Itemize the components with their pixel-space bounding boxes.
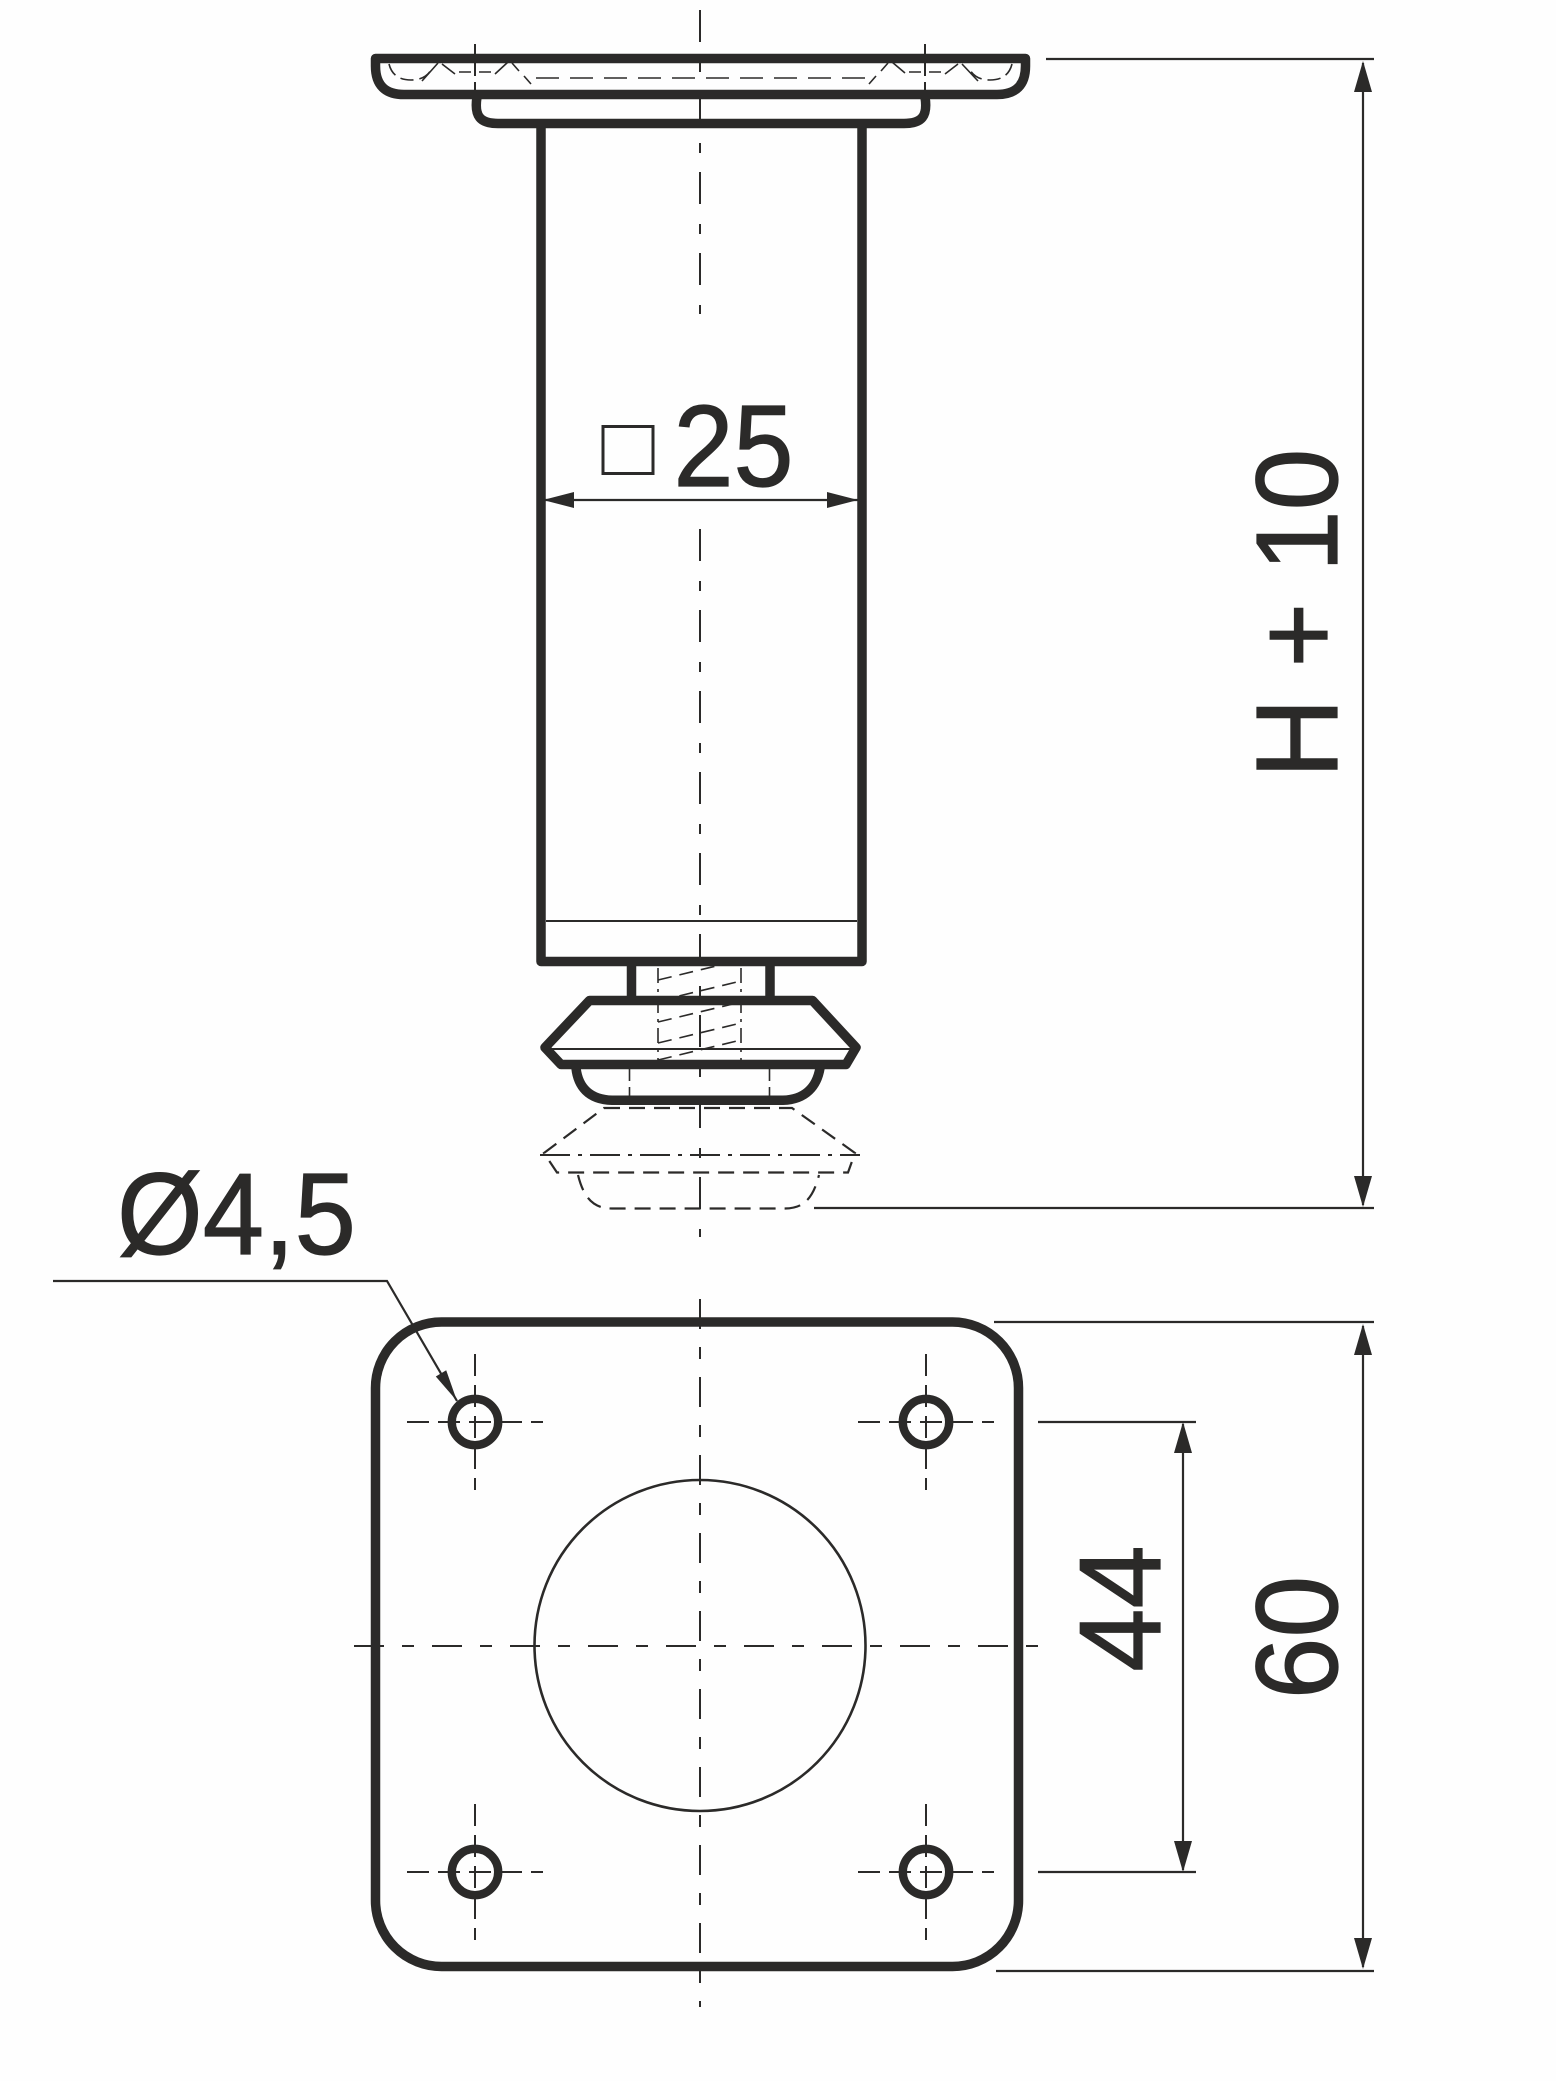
svg-text:60: 60	[1233, 1576, 1363, 1699]
svg-text:Ø4,5: Ø4,5	[117, 1149, 356, 1278]
svg-text:44: 44	[1056, 1545, 1185, 1671]
svg-text:H + 10: H + 10	[1233, 449, 1363, 778]
svg-text:25: 25	[674, 381, 794, 510]
